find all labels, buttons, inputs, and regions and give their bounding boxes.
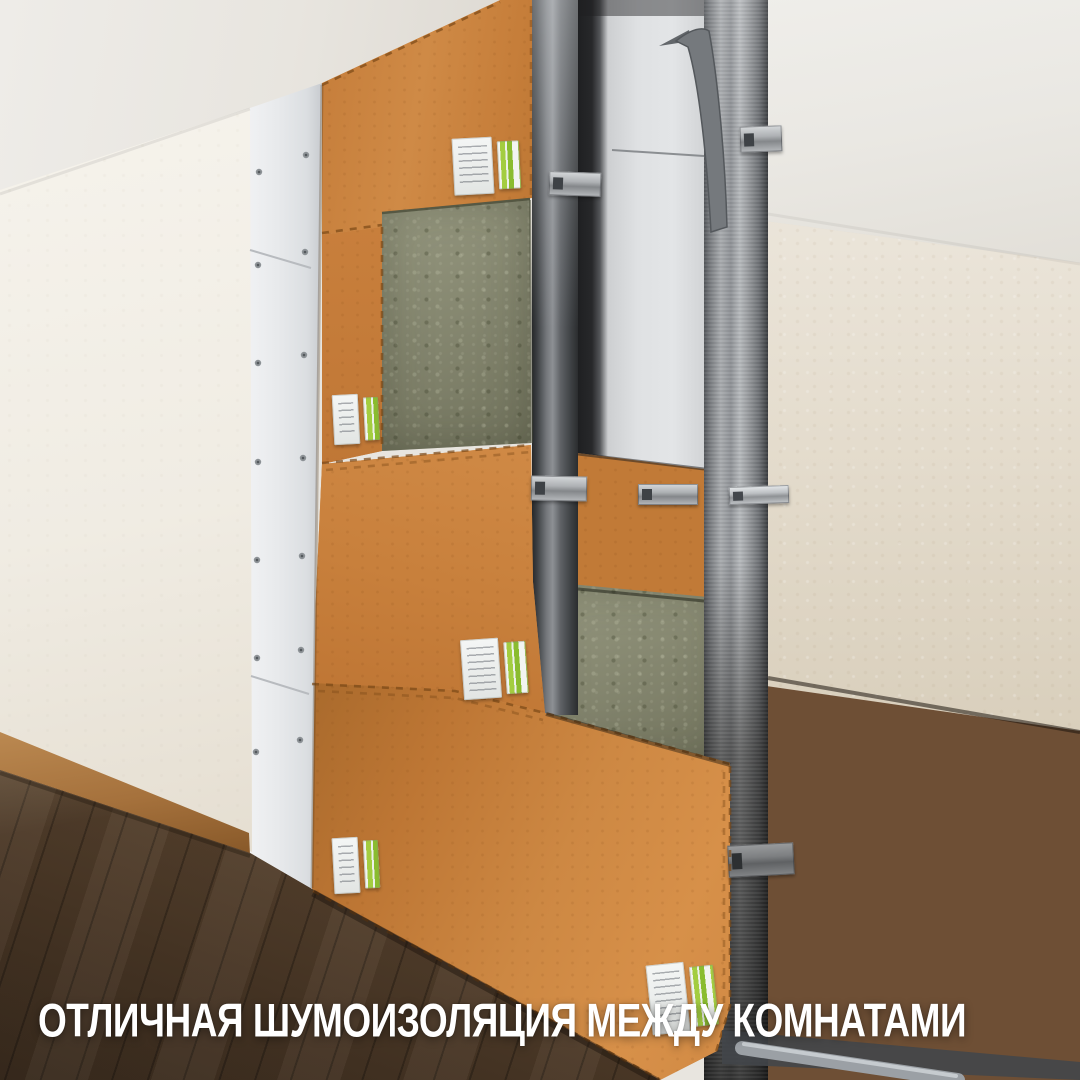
scene-image: ОТЛИЧНАЯ ШУМОИЗОЛЯЦИЯ МЕЖДУ КОМНАТАМИ [0,0,1080,1080]
edge-shadows [0,0,1080,1080]
metal-strap [659,29,727,232]
product-label [460,636,529,700]
drywall-screws [253,152,309,755]
product-label [332,836,381,894]
label-card [460,638,502,701]
product-label [452,135,522,195]
label-text-lines [467,646,497,692]
label-card [332,394,361,445]
label-text-lines [338,845,355,886]
caption: ОТЛИЧНАЯ ШУМОИЗОЛЯЦИЯ МЕЖДУ КОМНАТАМИ [38,994,966,1048]
label-card [452,137,495,196]
label-text-lines [458,145,489,187]
product-label [332,393,381,445]
label-text-lines [338,402,355,437]
label-card [332,837,361,894]
label-stripe-card [363,397,380,441]
panel-seams [312,2,730,1079]
detail-overlay [0,0,1080,1080]
label-stripe-card [363,840,380,889]
drywall-strip-seams [250,250,311,694]
label-stripe-card [503,641,529,694]
label-stripe-card [497,140,521,189]
